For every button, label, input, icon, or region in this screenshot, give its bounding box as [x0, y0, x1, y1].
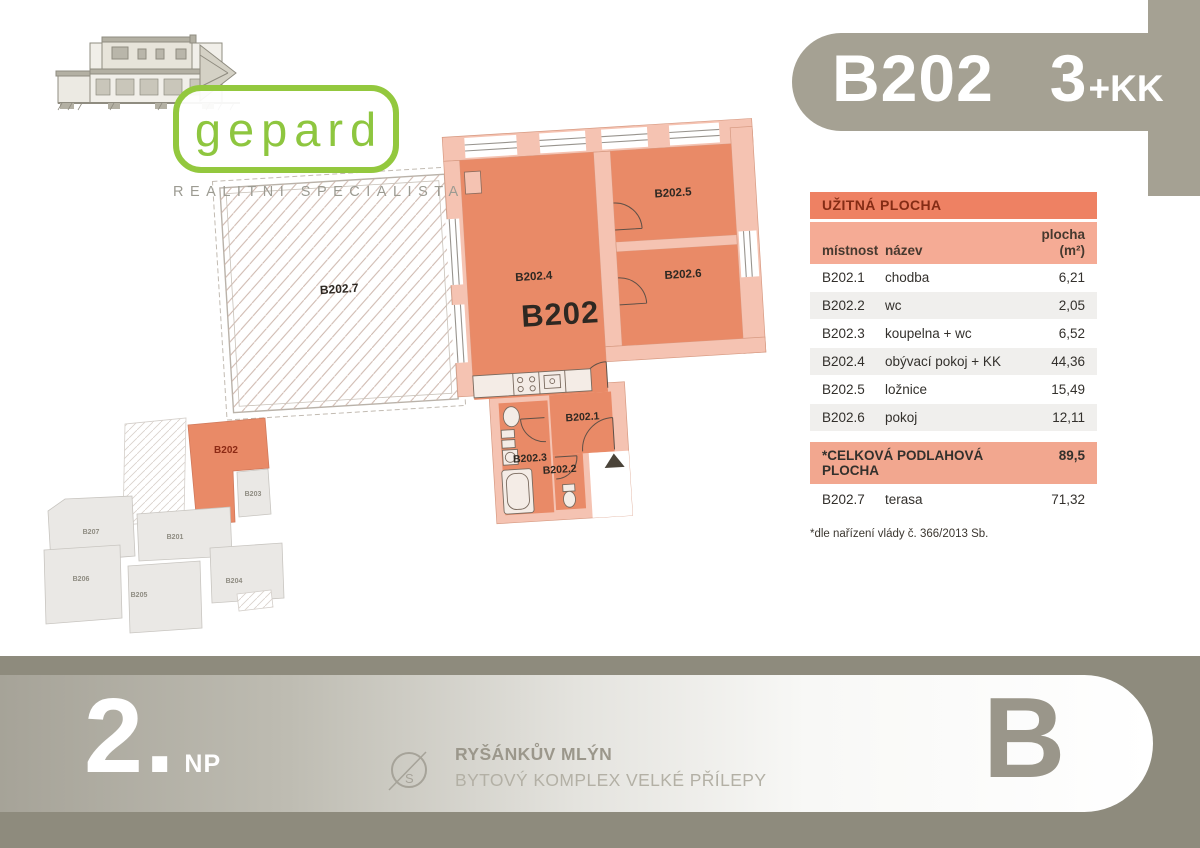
- chimney-block: [464, 171, 481, 194]
- col-header-area-line2: (m²): [1060, 243, 1086, 258]
- gepard-logo-wordmark: gepard: [189, 106, 383, 153]
- badge-unit-number: B202: [832, 45, 994, 111]
- table-row: B202.5 ložnice 15,49: [810, 376, 1097, 403]
- project-titles: RYŠÁNKŮV MLÝN BYTOVÝ KOMPLEX VELKÉ PŘÍLE…: [455, 744, 766, 792]
- site-label: B207: [83, 529, 100, 536]
- cell-room: B202.3: [822, 326, 885, 341]
- project-title: RYŠÁNKŮV MLÝN: [455, 744, 766, 766]
- cell-area: 15,49: [1027, 382, 1085, 397]
- room-label: B202.6: [664, 268, 702, 282]
- cell-area: 6,52: [1027, 326, 1085, 341]
- cell-room: B202.6: [822, 410, 885, 425]
- table-row: B202.6 pokoj 12,11: [810, 404, 1097, 431]
- col-header-name: název: [885, 243, 1027, 259]
- room-label: B202.5: [654, 186, 692, 200]
- cell-room: B202.4: [822, 354, 885, 369]
- table-header-row: místnost název plocha (m²): [810, 222, 1097, 264]
- site-key-plan: B202 B203 B207 B201 B206 B205 B204: [25, 398, 285, 638]
- cell-name: chodba: [885, 270, 1027, 285]
- cell-area: 2,05: [1027, 298, 1085, 313]
- total-value: 89,5: [1027, 448, 1085, 478]
- total-label: *CELKOVÁ PODLAHOVÁ PLOCHA: [822, 448, 1027, 478]
- terrace-label: B202.7: [319, 281, 359, 297]
- site-label: B201: [167, 534, 184, 541]
- cell-name: koupelna + wc: [885, 326, 1027, 341]
- cell-name: pokoj: [885, 410, 1027, 425]
- compass-south-label: S: [405, 771, 414, 786]
- table-title: UŽITNÁ PLOCHA: [810, 192, 1097, 219]
- compass-icon: S: [386, 745, 432, 795]
- site-label-b202: B202: [214, 445, 238, 456]
- unit-main-label: B202: [520, 294, 600, 334]
- cell-name: obývací pokoj + KK: [885, 354, 1027, 369]
- floor-number: 2.: [84, 683, 176, 789]
- room-label: B202.2: [542, 463, 577, 477]
- project-subtitle: BYTOVÝ KOMPLEX VELKÉ PŘÍLEPY: [455, 770, 766, 792]
- room-label: B202.4: [515, 270, 553, 284]
- unit-badge: B202 3 +KK: [792, 33, 1200, 131]
- table-terrace-row: B202.7 terasa 71,32: [810, 486, 1097, 513]
- cell-area: 6,21: [1027, 270, 1085, 285]
- site-label: B204: [226, 578, 243, 585]
- table-footnote: *dle nařízení vlády č. 366/2013 Sb.: [810, 528, 1097, 540]
- cell-area: 71,32: [1027, 492, 1085, 507]
- col-header-area-line1: plocha: [1041, 227, 1085, 242]
- site-label: B205: [131, 592, 148, 599]
- cell-room: B202.1: [822, 270, 885, 285]
- site-label: B206: [73, 576, 90, 583]
- area-table: UŽITNÁ PLOCHA místnost název plocha (m²)…: [810, 192, 1097, 540]
- room-label: B202.3: [513, 452, 548, 466]
- site-unit-b206: [44, 545, 122, 624]
- room-label: B202.1: [565, 410, 600, 424]
- floor-suffix: NP: [184, 750, 221, 779]
- terrace-area: B202.7: [212, 167, 465, 420]
- table-total-row: *CELKOVÁ PODLAHOVÁ PLOCHA 89,5: [810, 442, 1097, 484]
- building-block-letter: B: [983, 682, 1065, 796]
- cell-room: B202.2: [822, 298, 885, 313]
- table-row: B202.4 obývací pokoj + KK 44,36: [810, 348, 1097, 375]
- cell-name: wc: [885, 298, 1027, 313]
- cell-area: 44,36: [1027, 354, 1085, 369]
- col-header-area: plocha (m²): [1027, 227, 1085, 259]
- cell-room: B202.5: [822, 382, 885, 397]
- floor-label: 2. NP: [84, 683, 221, 789]
- col-header-room: místnost: [822, 243, 885, 259]
- table-row: B202.3 koupelna + wc 6,52: [810, 320, 1097, 347]
- table-row: B202.1 chodba 6,21: [810, 264, 1097, 291]
- logo-tagline: REALITNI SPECIALISTA: [173, 184, 399, 200]
- site-label: B203: [245, 491, 262, 498]
- cell-name: terasa: [885, 492, 1027, 507]
- cell-area: 12,11: [1027, 410, 1085, 425]
- room-hall: [549, 392, 615, 456]
- badge-kk-suffix: +KK: [1089, 70, 1164, 107]
- cell-room: B202.7: [822, 492, 885, 507]
- gepard-logo: gepard: [173, 85, 399, 173]
- badge-room-count: 3: [1050, 45, 1087, 111]
- cell-name: ložnice: [885, 382, 1027, 397]
- table-row: B202.2 wc 2,05: [810, 292, 1097, 319]
- room-kidroom: [616, 245, 743, 346]
- footer: 2. NP S RYŠÁNKŮV MLÝN BYTOVÝ KOMPLEX VEL…: [0, 656, 1200, 848]
